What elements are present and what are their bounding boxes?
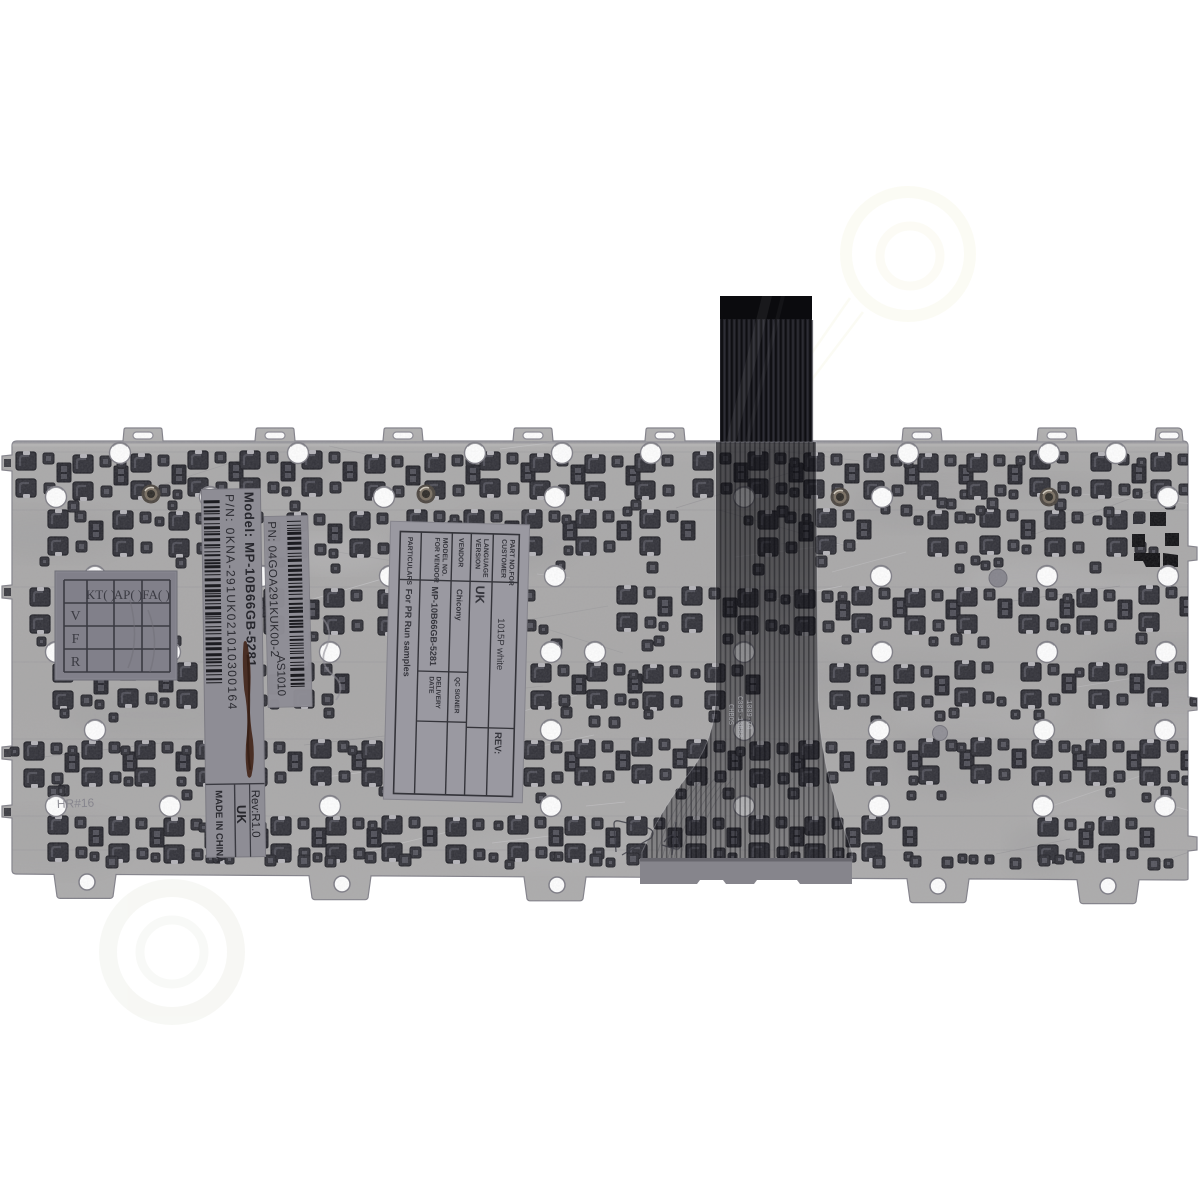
svg-text:R: R [71, 655, 81, 670]
svg-text:UK: UK [473, 585, 487, 603]
svg-text:C005-10B88: C005-10B88 [735, 696, 743, 738]
svg-text:MODEL NO.: MODEL NO. [440, 538, 448, 577]
svg-text:REV:: REV: [492, 732, 504, 754]
svg-text:Chicony: Chicony [454, 589, 464, 621]
svg-text:FOR VENDOR: FOR VENDOR [432, 537, 440, 583]
svg-text:VENDOR: VENDOR [456, 538, 464, 567]
svg-text:PART NO.FOR: PART NO.FOR [507, 539, 515, 586]
svg-text:VERSION: VERSION [473, 538, 481, 569]
svg-text:FA( ): FA( ) [142, 587, 170, 602]
svg-text:PARTICULARS: PARTICULARS [405, 537, 413, 586]
svg-text:CHBOS: CHBOS [726, 704, 734, 725]
svg-text:CUSTOMER: CUSTOMER [499, 539, 507, 578]
svg-text:AS1010: AS1010 [274, 655, 287, 696]
svg-text:UK: UK [234, 805, 249, 825]
svg-text:1015P white: 1015P white [494, 618, 506, 670]
svg-text:F: F [72, 632, 80, 647]
svg-text:LANGUAGE: LANGUAGE [481, 539, 489, 579]
svg-text:AP( ): AP( ) [114, 587, 143, 602]
svg-text:V: V [70, 609, 80, 624]
svg-text:QC SIGNER: QC SIGNER [453, 677, 461, 714]
svg-text:MP-10B66GB-5281: MP-10B66GB-5281 [428, 586, 440, 666]
svg-text:Rev:R1.0: Rev:R1.0 [249, 790, 262, 838]
svg-text:1009-04: 1009-04 [744, 700, 752, 729]
svg-text:Model: MP-10B66GB-5281: Model: MP-10B66GB-5281 [241, 492, 258, 668]
svg-text:KT( ): KT( ) [86, 587, 115, 602]
svg-text:MADE IN CHINA: MADE IN CHINA [213, 790, 225, 863]
svg-text:DATE: DATE [427, 676, 434, 694]
